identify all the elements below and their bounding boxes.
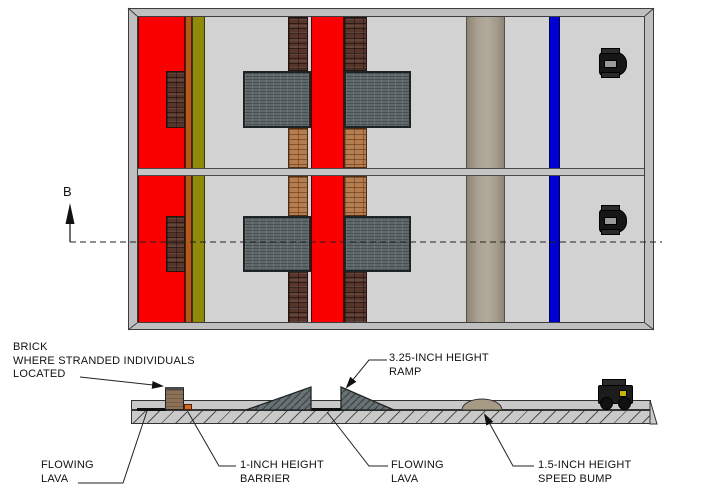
brick-column-b-mid-upper	[344, 128, 367, 168]
section-line-letter: B	[63, 184, 72, 199]
robot-tread	[601, 72, 620, 78]
callout-lava-left: FLOWING LAVA	[41, 459, 94, 486]
drawing-canvas: B	[0, 0, 719, 499]
robot-wheel	[600, 397, 613, 410]
robot-tread	[601, 205, 620, 211]
section-stranded-brick	[165, 387, 184, 410]
lane-divider	[138, 168, 645, 176]
robot-section-view	[598, 379, 634, 410]
ramp-down-lane1	[344, 71, 411, 128]
section-floor-top-plate	[131, 400, 651, 410]
brick-column-a-mid-lower	[288, 176, 308, 216]
robot-tread	[601, 229, 620, 235]
callout-lava-right: FLOWING LAVA	[391, 459, 444, 486]
stranded-brick-lane1	[166, 71, 185, 128]
brick-column-a-bottom	[288, 271, 308, 323]
arena-top-view	[137, 16, 645, 323]
ramp-up-lane1	[243, 71, 311, 128]
callout-ramp-line1: 3.25-INCH HEIGHT	[389, 352, 489, 366]
section-lava-channel-left	[137, 408, 166, 411]
callout-lava-right-line2: LAVA	[391, 473, 444, 487]
callout-ramp: 3.25-INCH HEIGHT RAMP	[389, 352, 489, 379]
section-barrier	[184, 404, 192, 410]
robot-lane2	[597, 205, 629, 235]
leader-ramp	[347, 360, 387, 387]
section-floor-base-hatched	[131, 410, 651, 424]
section-floor-end-bevel	[650, 400, 657, 424]
robot-screen	[604, 60, 617, 68]
brick-column-a-mid-upper	[288, 128, 308, 168]
callout-barrier-line1: 1-INCH HEIGHT	[240, 459, 324, 473]
callout-brick-line2: WHERE STRANDED INDIVIDUALS	[13, 355, 195, 369]
ramp-up-lane2	[243, 216, 311, 272]
stranded-brick-lane2	[166, 216, 185, 272]
robot-lamp	[619, 390, 627, 397]
callout-speed-bump-line1: 1.5-INCH HEIGHT	[538, 459, 631, 473]
callout-lava-left-line2: LAVA	[41, 473, 94, 487]
callout-brick-line1: BRICK	[13, 341, 195, 355]
callout-lava-right-line1: FLOWING	[391, 459, 444, 473]
callout-ramp-line2: RAMP	[389, 366, 489, 380]
callout-barrier: 1-INCH HEIGHT BARRIER	[240, 459, 324, 486]
robot-tread	[601, 48, 620, 54]
section-lava-channel-center	[311, 408, 341, 411]
callout-brick-line3: LOCATED	[13, 368, 195, 382]
callout-barrier-line2: BARRIER	[240, 473, 324, 487]
brick-column-a-top	[288, 17, 308, 71]
callout-speed-bump-line2: SPEED BUMP	[538, 473, 631, 487]
robot-screen	[604, 217, 617, 225]
callout-brick: BRICK WHERE STRANDED INDIVIDUALS LOCATED	[13, 341, 195, 382]
section-arrow-icon	[66, 203, 75, 224]
ramp-down-lane2	[344, 216, 411, 272]
callout-speed-bump: 1.5-INCH HEIGHT SPEED BUMP	[538, 459, 631, 486]
brick-column-b-top	[344, 17, 367, 71]
callout-lava-left-line1: FLOWING	[41, 459, 94, 473]
brick-column-b-mid-lower	[344, 176, 367, 216]
robot-wheel	[618, 397, 631, 410]
robot-lane1	[597, 48, 629, 78]
brick-column-b-bottom	[344, 271, 367, 323]
